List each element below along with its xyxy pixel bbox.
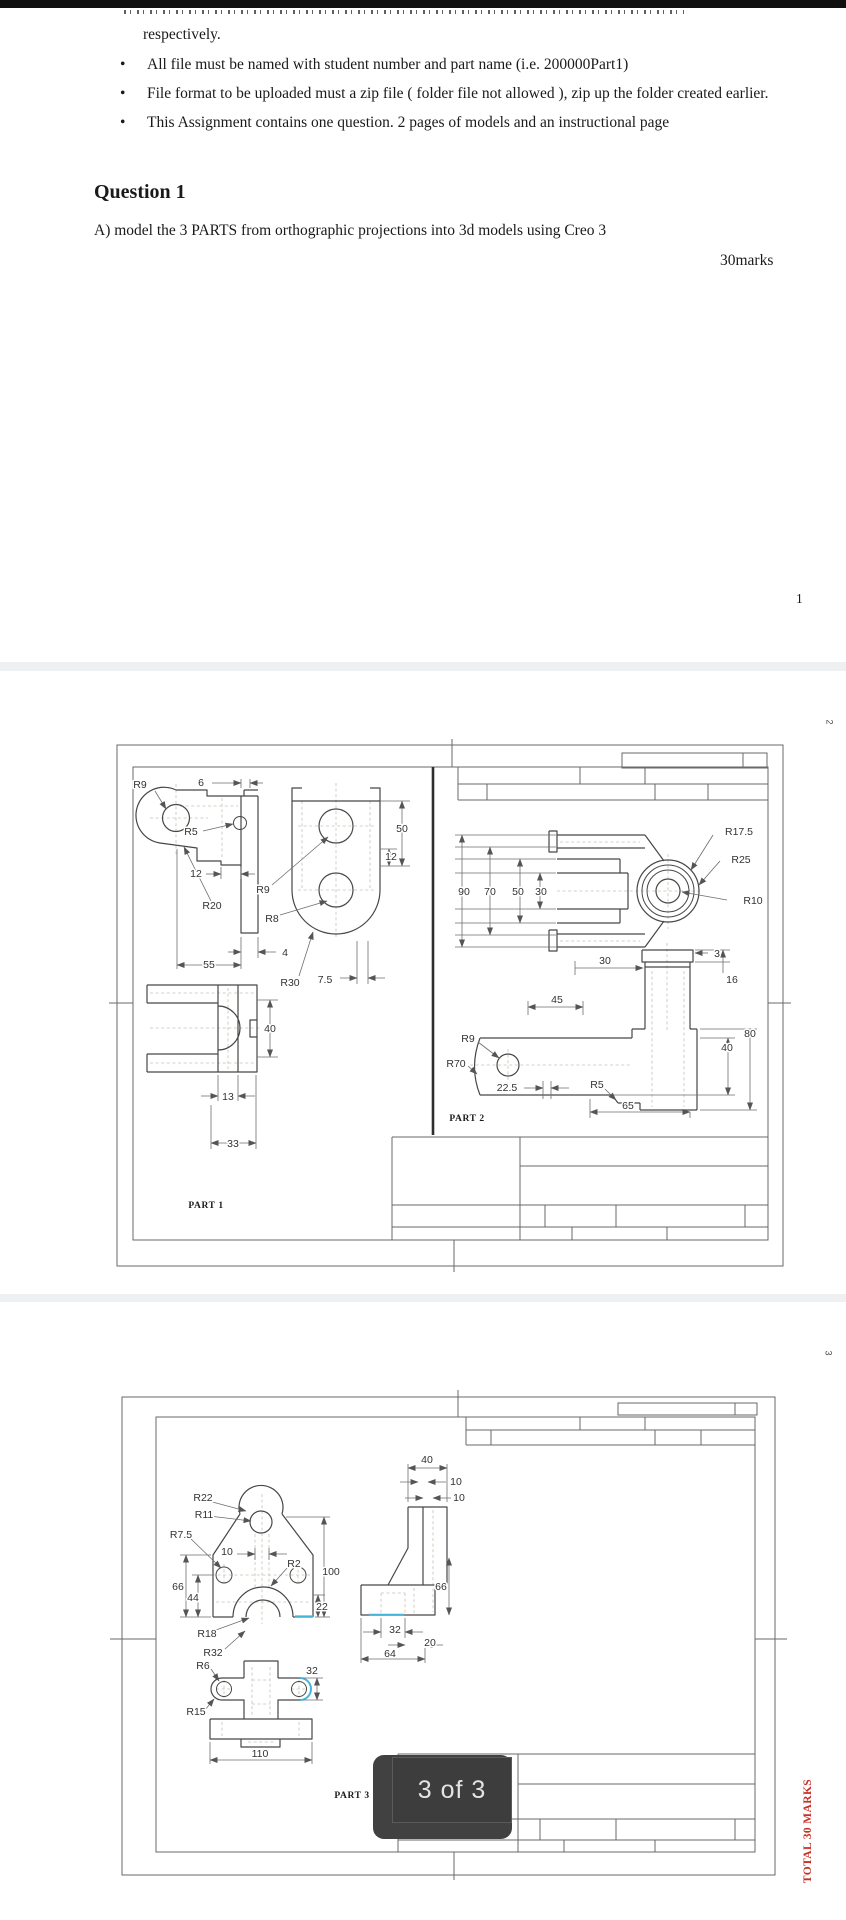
dim-label: 4 <box>282 947 288 959</box>
total-marks-note: TOTAL 30 MARKS <box>802 1766 818 1896</box>
dim-label: 12 <box>385 851 397 863</box>
question-body: A) model the 3 PARTS from orthographic p… <box>94 216 606 245</box>
top-black-bar <box>0 0 846 8</box>
part3-bottom-view <box>210 1661 312 1747</box>
dim-label: 20 <box>424 1637 436 1649</box>
page-indicator-inner: 3 of 3 <box>392 1757 512 1823</box>
part2-lower-dims: 30 3 16 45 R9 R70 22.5 R5 65 40 80 <box>446 948 757 1118</box>
dim-label: 50 <box>512 886 524 898</box>
sheet-frame <box>109 739 791 1272</box>
bullet-icon: • <box>120 50 147 79</box>
dim-label: 32 <box>306 1665 318 1677</box>
document-page-2: 2 <box>0 671 846 1294</box>
dim-label: 10 <box>450 1476 462 1488</box>
dim-label: 55 <box>203 959 215 971</box>
part1-label: PART 1 <box>188 1201 223 1211</box>
dim-label: R10 <box>743 895 762 907</box>
list-item: • All file must be named with student nu… <box>120 50 796 79</box>
bullet-icon: • <box>120 108 147 137</box>
dim-label: R6 <box>196 1660 210 1672</box>
dim-label: 30 <box>599 955 611 967</box>
dim-label: 32 <box>389 1624 401 1636</box>
dim-label: 50 <box>396 823 408 835</box>
dim-label: 6 <box>198 777 204 789</box>
part2-fork-dims: 90 70 50 30 R17.5 R25 R10 <box>455 826 763 947</box>
dim-label: R18 <box>197 1628 216 1640</box>
dim-label: R20 <box>202 900 221 912</box>
dim-label: 80 <box>744 1028 756 1040</box>
bullet-text: All file must be named with student numb… <box>147 50 791 79</box>
pdf-viewer: respectively. • All file must be named w… <box>0 0 846 1920</box>
dim-label: R9 <box>461 1033 475 1045</box>
part1-front-view <box>136 784 258 933</box>
dim-label: 90 <box>458 886 470 898</box>
dim-label: 45 <box>551 994 563 1006</box>
question-title: Question 1 <box>94 181 186 204</box>
dim-label: 33 <box>227 1138 239 1150</box>
dim-label: R8 <box>265 913 279 925</box>
dim-label: 13 <box>222 1091 234 1103</box>
bullet-text: This Assignment contains one question. 2… <box>147 108 791 137</box>
dim-label: 40 <box>264 1023 276 1035</box>
part3-label: PART 3 <box>334 1791 369 1801</box>
dim-label: R70 <box>446 1058 465 1070</box>
dim-label: 10 <box>453 1492 465 1504</box>
dim-label: 64 <box>384 1648 396 1660</box>
page-marker: 3 <box>824 1350 834 1355</box>
page-gap <box>0 662 846 671</box>
dim-label: R17.5 <box>725 826 753 838</box>
dim-label: R22 <box>193 1492 212 1504</box>
dim-label: 3 <box>714 948 720 960</box>
dim-label: R5 <box>590 1079 604 1091</box>
dim-label: 66 <box>172 1581 184 1593</box>
dim-label: 40 <box>721 1042 733 1054</box>
marks-note: 30marks <box>720 246 773 275</box>
dim-label: R2 <box>287 1558 301 1570</box>
page-gap <box>0 1294 846 1302</box>
document-page-1: respectively. • All file must be named w… <box>0 8 846 662</box>
dim-label: 12 <box>190 868 202 880</box>
part1-plate-dims: R9 R8 R30 7.5 50 12 <box>256 801 410 989</box>
page-marker: 2 <box>825 719 835 724</box>
dim-label: R32 <box>203 1647 222 1659</box>
highlight-arc <box>300 1678 311 1700</box>
dim-label: R7.5 <box>170 1529 192 1541</box>
page-number: 1 <box>796 591 803 607</box>
dim-label: R30 <box>280 977 299 989</box>
dim-label: R9 <box>256 884 270 896</box>
part3-side-dims: 40 10 10 66 32 20 64 <box>361 1454 465 1663</box>
dim-label: 22.5 <box>497 1082 518 1094</box>
bullet-list: • All file must be named with student nu… <box>120 50 796 137</box>
intro-tail-text: respectively. <box>143 20 221 49</box>
dim-label: R11 <box>195 1509 214 1521</box>
dim-label: 7.5 <box>318 974 333 986</box>
list-item: • File format to be uploaded must a zip … <box>120 79 796 108</box>
dim-label: 30 <box>535 886 547 898</box>
dim-label: 22 <box>316 1601 328 1613</box>
part2-fork-view <box>549 831 700 951</box>
page-indicator-text: 3 of 3 <box>418 1776 487 1805</box>
part3-bottom-dims: R6 R15 32 110 <box>186 1660 323 1764</box>
part1-plate-view <box>292 783 380 937</box>
dim-label: 16 <box>726 974 738 986</box>
document-page-3: 3 <box>0 1302 846 1920</box>
page-indicator-toast: 3 of 3 <box>373 1755 512 1839</box>
dim-label: 65 <box>622 1100 634 1112</box>
dim-label: 70 <box>484 886 496 898</box>
part1-side-view <box>147 985 262 1072</box>
part3-side-view <box>361 1507 447 1615</box>
part1-part2-drawing: R9 6 R5 12 R20 55 4 <box>0 671 846 1294</box>
dim-label: R15 <box>186 1706 205 1718</box>
dim-label: R25 <box>731 854 750 866</box>
dim-label: 40 <box>421 1454 433 1466</box>
title-block <box>392 1137 768 1240</box>
clipped-text-line <box>124 10 684 14</box>
bullet-icon: • <box>120 79 147 108</box>
dim-label: 10 <box>221 1546 233 1558</box>
part2-label: PART 2 <box>449 1114 484 1124</box>
dim-label: 100 <box>322 1566 340 1578</box>
dim-label: R9 <box>133 779 147 791</box>
dim-label: 44 <box>187 1592 199 1604</box>
list-item: • This Assignment contains one question.… <box>120 108 796 137</box>
dim-label: R5 <box>184 826 198 838</box>
bullet-text: File format to be uploaded must a zip fi… <box>147 79 791 108</box>
dim-label: 110 <box>252 1748 269 1760</box>
dim-label: 66 <box>435 1581 447 1593</box>
